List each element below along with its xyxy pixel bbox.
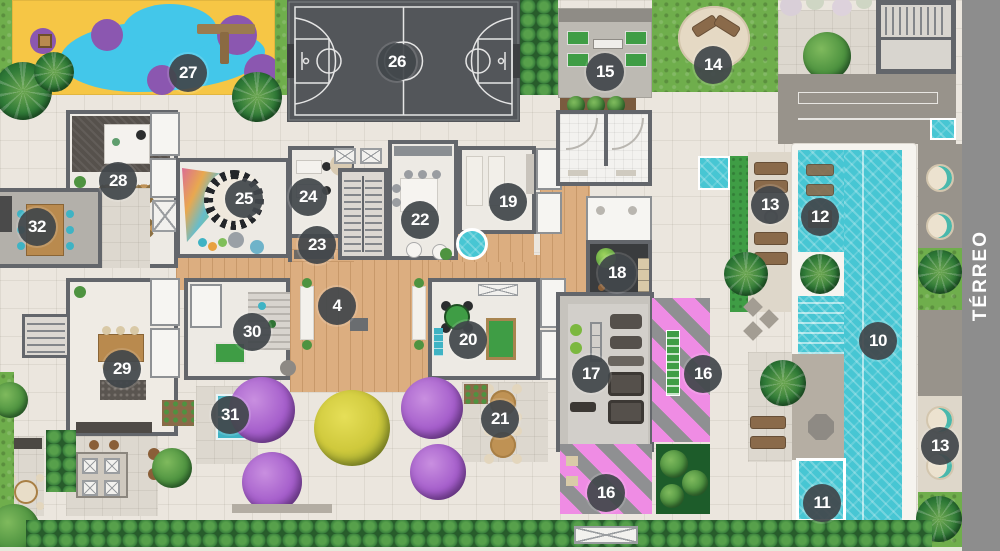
area-badge-14: 14 bbox=[694, 46, 732, 84]
area-badge-13: 13 bbox=[751, 186, 789, 224]
area-badge-26: 26 bbox=[378, 43, 416, 81]
area-badge-24: 24 bbox=[289, 178, 327, 216]
area-badge-32: 32 bbox=[18, 208, 56, 246]
area-badge-21: 21 bbox=[481, 400, 519, 438]
floorplan-canvas: 2726151428322524232219184302017162931211… bbox=[0, 0, 962, 551]
area-badge-29: 29 bbox=[103, 350, 141, 388]
floor-label: TÉRREO bbox=[970, 230, 992, 321]
area-badge-4: 4 bbox=[318, 287, 356, 325]
area-badge-10: 10 bbox=[859, 322, 897, 360]
floor-label-sidebar: TÉRREO bbox=[962, 0, 1000, 551]
area-badge-15: 15 bbox=[586, 53, 624, 91]
area-badge-30: 30 bbox=[233, 313, 271, 351]
area-badge-23: 23 bbox=[298, 226, 336, 264]
badge-layer: 2726151428322524232219184302017162931211… bbox=[0, 0, 962, 551]
area-badge-20: 20 bbox=[449, 321, 487, 359]
area-badge-17: 17 bbox=[572, 355, 610, 393]
area-badge-31: 31 bbox=[211, 396, 249, 434]
area-badge-25: 25 bbox=[225, 180, 263, 218]
area-badge-11: 11 bbox=[803, 484, 841, 522]
area-badge-19: 19 bbox=[489, 183, 527, 221]
area-badge-13: 13 bbox=[921, 427, 959, 465]
area-badge-16: 16 bbox=[684, 355, 722, 393]
area-badge-18: 18 bbox=[598, 254, 636, 292]
area-badge-16: 16 bbox=[587, 474, 625, 512]
area-badge-22: 22 bbox=[401, 201, 439, 239]
area-badge-12: 12 bbox=[801, 198, 839, 236]
area-badge-27: 27 bbox=[169, 54, 207, 92]
floorplan-screenshot: 2726151428322524232219184302017162931211… bbox=[0, 0, 1000, 551]
area-badge-28: 28 bbox=[99, 162, 137, 200]
